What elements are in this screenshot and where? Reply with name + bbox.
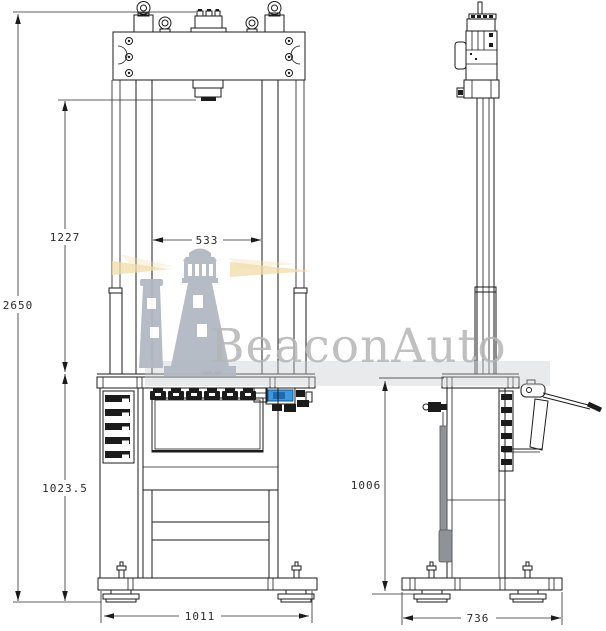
pressure-gauge	[266, 388, 312, 412]
watermark-brand-text: BeaconAuto	[210, 319, 507, 374]
leveling-foot	[414, 562, 450, 602]
cylinder-head	[191, 9, 226, 32]
svg-text:2650: 2650	[3, 299, 34, 312]
leveling-foot	[103, 562, 139, 602]
eye-bolt-icon	[268, 2, 281, 17]
dimension-base-width: 1011	[104, 608, 309, 624]
cabinet-slot	[105, 395, 130, 458]
eye-bolt-icon	[137, 2, 150, 17]
beam-bolt	[126, 38, 293, 77]
tool-cabinet	[100, 388, 138, 578]
leveling-foot	[278, 562, 314, 602]
svg-text:1011: 1011	[185, 610, 216, 623]
watermark: BeaconAuto	[112, 242, 550, 386]
cabinet-slot	[501, 394, 512, 465]
svg-text:1023.5: 1023.5	[42, 482, 88, 495]
side-view	[402, 2, 601, 602]
dimension-opening-height: 1227	[46, 101, 84, 372]
svg-text:1227: 1227	[50, 231, 81, 244]
lower-shelf	[152, 522, 269, 540]
svg-text:736: 736	[467, 612, 490, 625]
dimension-table-height-side: 1006	[348, 381, 385, 591]
eye-bolt-icon	[159, 17, 171, 32]
hand-lever	[503, 380, 601, 452]
leveling-foot	[510, 562, 546, 602]
column-stub-left	[134, 15, 153, 32]
svg-text:533: 533	[196, 234, 219, 247]
dimension-base-depth: 736	[403, 610, 561, 626]
side-fittings	[423, 402, 447, 428]
dimension-overall-height: 2650	[3, 14, 34, 601]
machine-body	[143, 388, 278, 578]
front-panel	[152, 398, 263, 453]
crossbeam	[113, 32, 305, 80]
svg-text:1006: 1006	[351, 479, 382, 492]
drawing-canvas: BeaconAuto 2650 1227 533	[0, 0, 606, 631]
eye-bolt-icon	[246, 17, 258, 32]
press-ram	[193, 80, 223, 101]
side-cabinet	[423, 388, 513, 578]
dimension-table-height-front: 1023.5	[41, 374, 89, 601]
side-bracket	[455, 42, 466, 69]
side-base-and-feet	[402, 562, 562, 602]
side-head	[455, 2, 499, 98]
column-stub-right	[265, 15, 284, 32]
lever-guard	[530, 399, 548, 450]
dimension-column-clear-width: 533	[153, 232, 261, 247]
base-and-feet	[98, 562, 317, 602]
foot-pedal	[439, 426, 452, 562]
